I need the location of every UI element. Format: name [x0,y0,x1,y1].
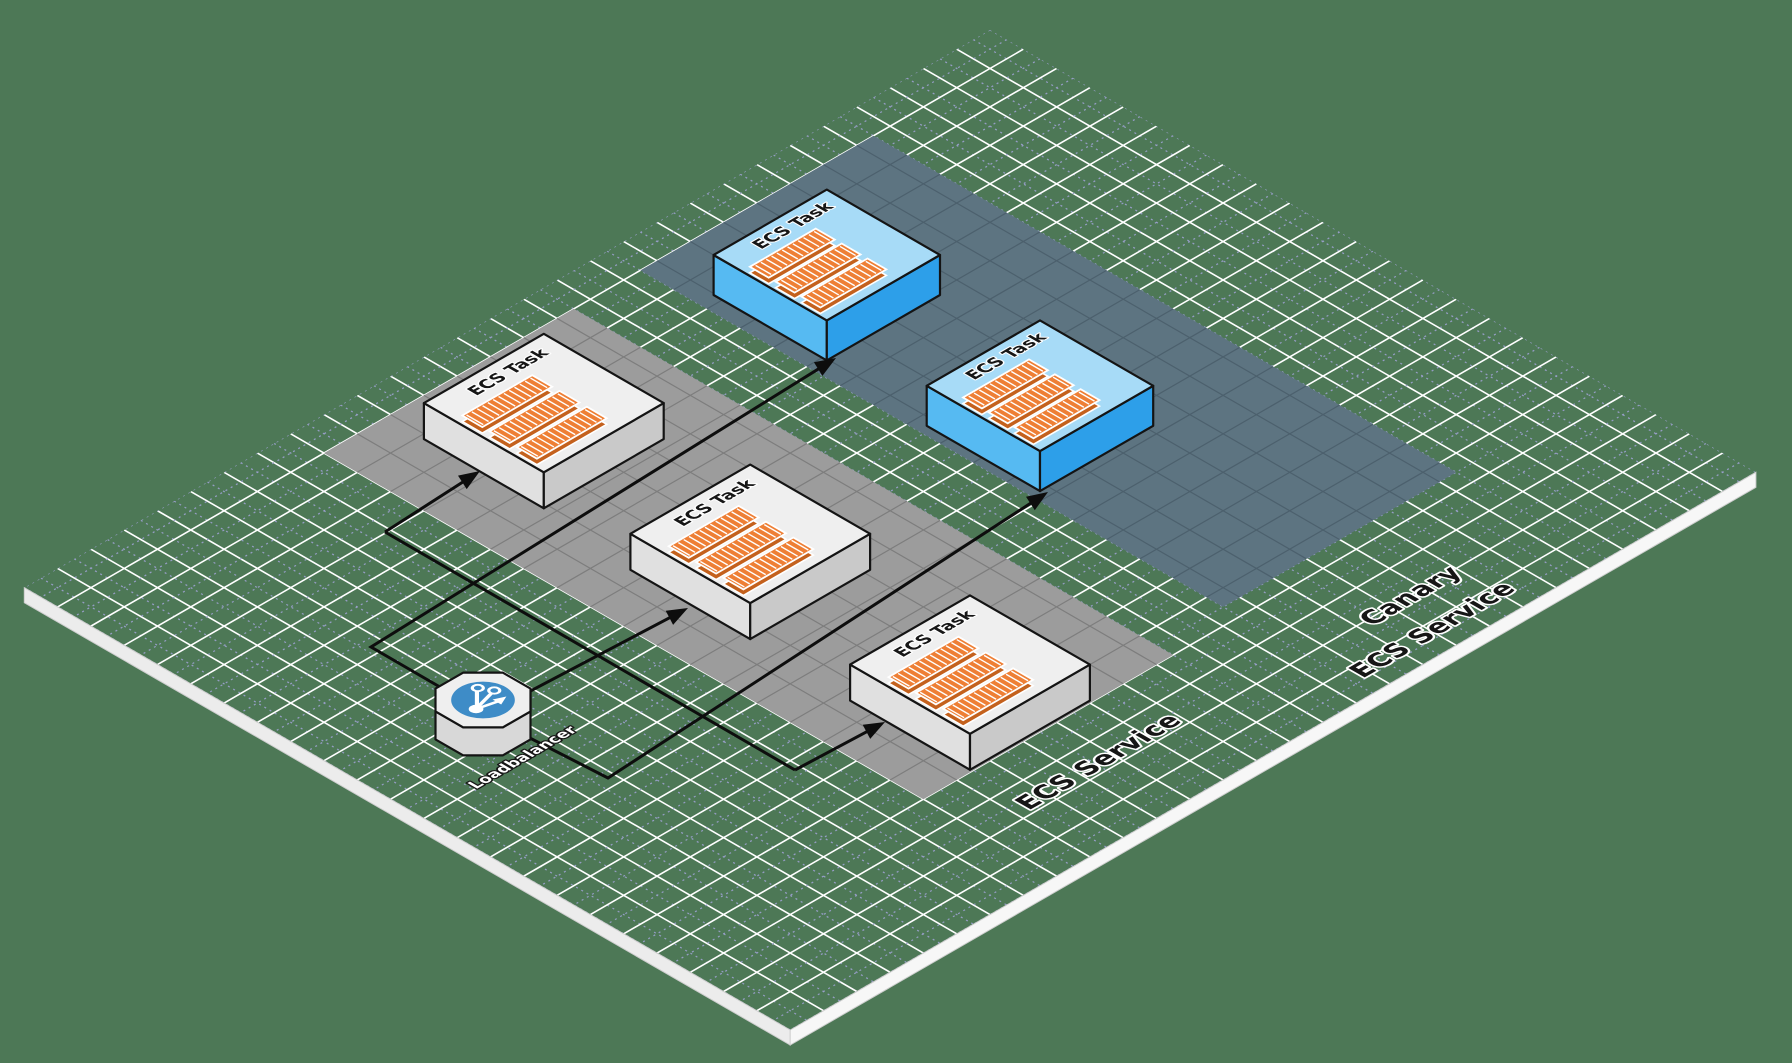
isometric-scene: ECS TaskECS TaskECS TaskECS TaskECS Task… [0,0,1792,1063]
loadbalancer[interactable] [436,673,531,756]
diagram-canvas: ECS TaskECS TaskECS TaskECS TaskECS Task… [0,0,1792,1063]
